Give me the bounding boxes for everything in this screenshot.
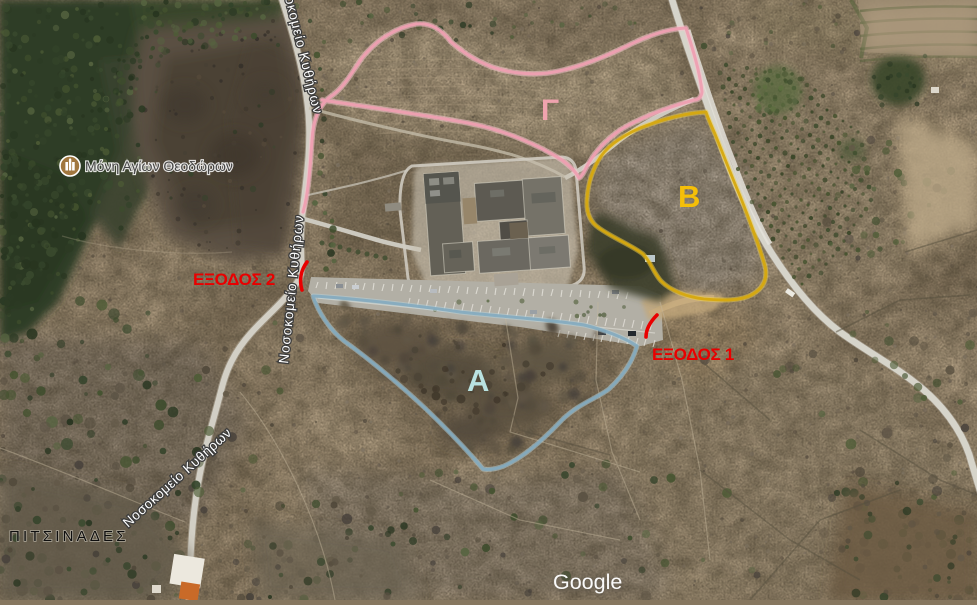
svg-text:A: A [467,363,489,398]
svg-text:Γ: Γ [541,94,559,127]
svg-text:Μόνη Αγίων Θεοδώρων: Μόνη Αγίων Θεοδώρων [85,158,233,174]
svg-text:ΕΞΟΔΟΣ 1: ΕΞΟΔΟΣ 1 [652,345,734,364]
svg-text:ΕΞΟΔΟΣ 2: ΕΞΟΔΟΣ 2 [193,270,275,289]
svg-text:ΠΙΤΣΙΝΑΔΕΣ: ΠΙΤΣΙΝΑΔΕΣ [9,528,129,545]
svg-text:Google: Google [553,570,622,594]
svg-text:B: B [678,179,700,214]
